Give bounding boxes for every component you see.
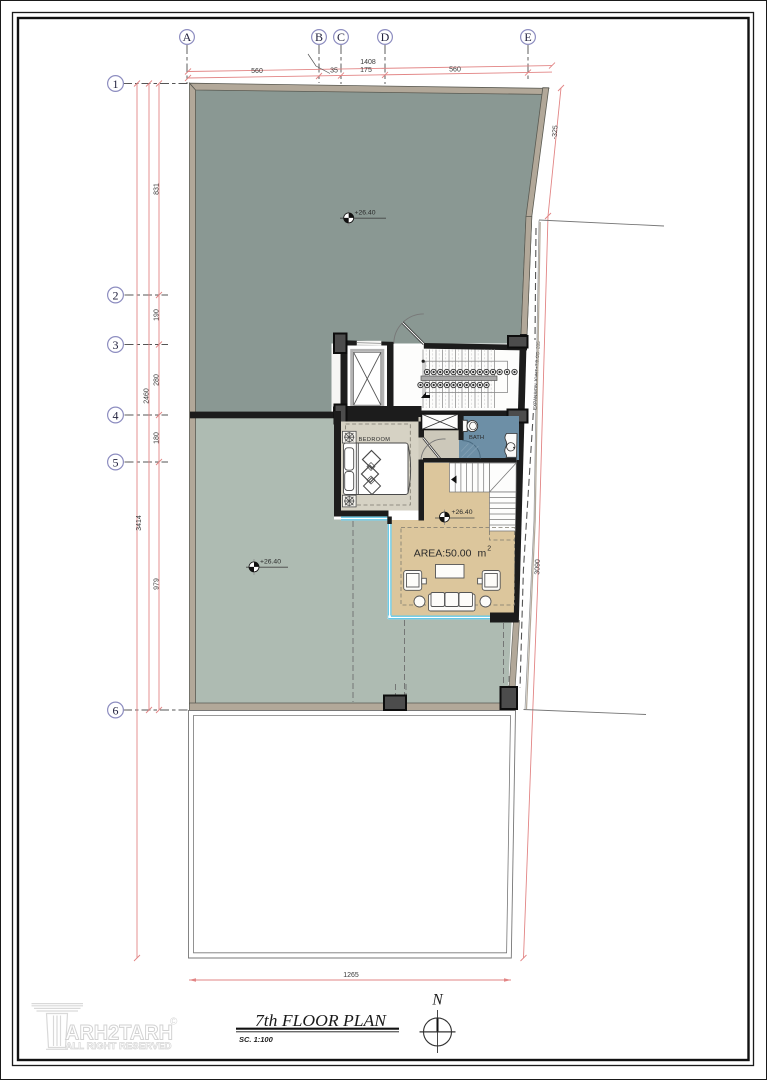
svg-text:N: N: [431, 992, 444, 1009]
svg-text:180: 180: [153, 432, 160, 444]
svg-text:+26.40: +26.40: [355, 209, 376, 216]
svg-text:1408: 1408: [360, 59, 376, 66]
svg-text:D: D: [381, 30, 390, 44]
svg-text:35: 35: [330, 68, 338, 75]
svg-text:AREA:50.00: AREA:50.00: [414, 548, 472, 560]
svg-text:B: B: [315, 30, 323, 44]
svg-text:A: A: [183, 30, 192, 44]
svg-text:1: 1: [113, 77, 119, 91]
svg-text:7th FLOOR PLAN: 7th FLOOR PLAN: [255, 1011, 387, 1030]
svg-text:E: E: [524, 30, 531, 44]
svg-text:1265: 1265: [343, 972, 359, 979]
svg-text:+26.40: +26.40: [260, 558, 281, 565]
svg-text:©: ©: [170, 1017, 178, 1028]
svg-text:SC. 1:100: SC. 1:100: [239, 1035, 274, 1044]
svg-text:3414: 3414: [136, 515, 143, 531]
svg-text:6: 6: [113, 704, 119, 718]
svg-text:2460: 2460: [144, 388, 151, 404]
svg-text:3: 3: [113, 338, 119, 352]
svg-text:BEDROOM: BEDROOM: [359, 437, 391, 443]
svg-text:979: 979: [153, 578, 160, 590]
svg-text:4: 4: [113, 409, 119, 423]
svg-text:2: 2: [487, 546, 491, 553]
svg-text:175: 175: [360, 67, 372, 74]
svg-text:831: 831: [153, 183, 160, 195]
svg-text:190: 190: [153, 309, 160, 321]
svg-text:5: 5: [113, 456, 119, 470]
svg-text:ALL RIGHT RESERVED: ALL RIGHT RESERVED: [66, 1041, 172, 1052]
svg-text:280: 280: [153, 374, 160, 386]
svg-text:BATH: BATH: [469, 435, 484, 441]
svg-text:+26.40: +26.40: [452, 509, 473, 516]
svg-text:C: C: [337, 30, 345, 44]
svg-text:2: 2: [113, 289, 119, 303]
svg-text:-325: -325: [551, 125, 559, 140]
svg-text:m: m: [478, 548, 487, 560]
svg-text:560: 560: [449, 66, 461, 73]
svg-text:560: 560: [251, 68, 263, 75]
svg-text:3090: 3090: [534, 559, 541, 575]
